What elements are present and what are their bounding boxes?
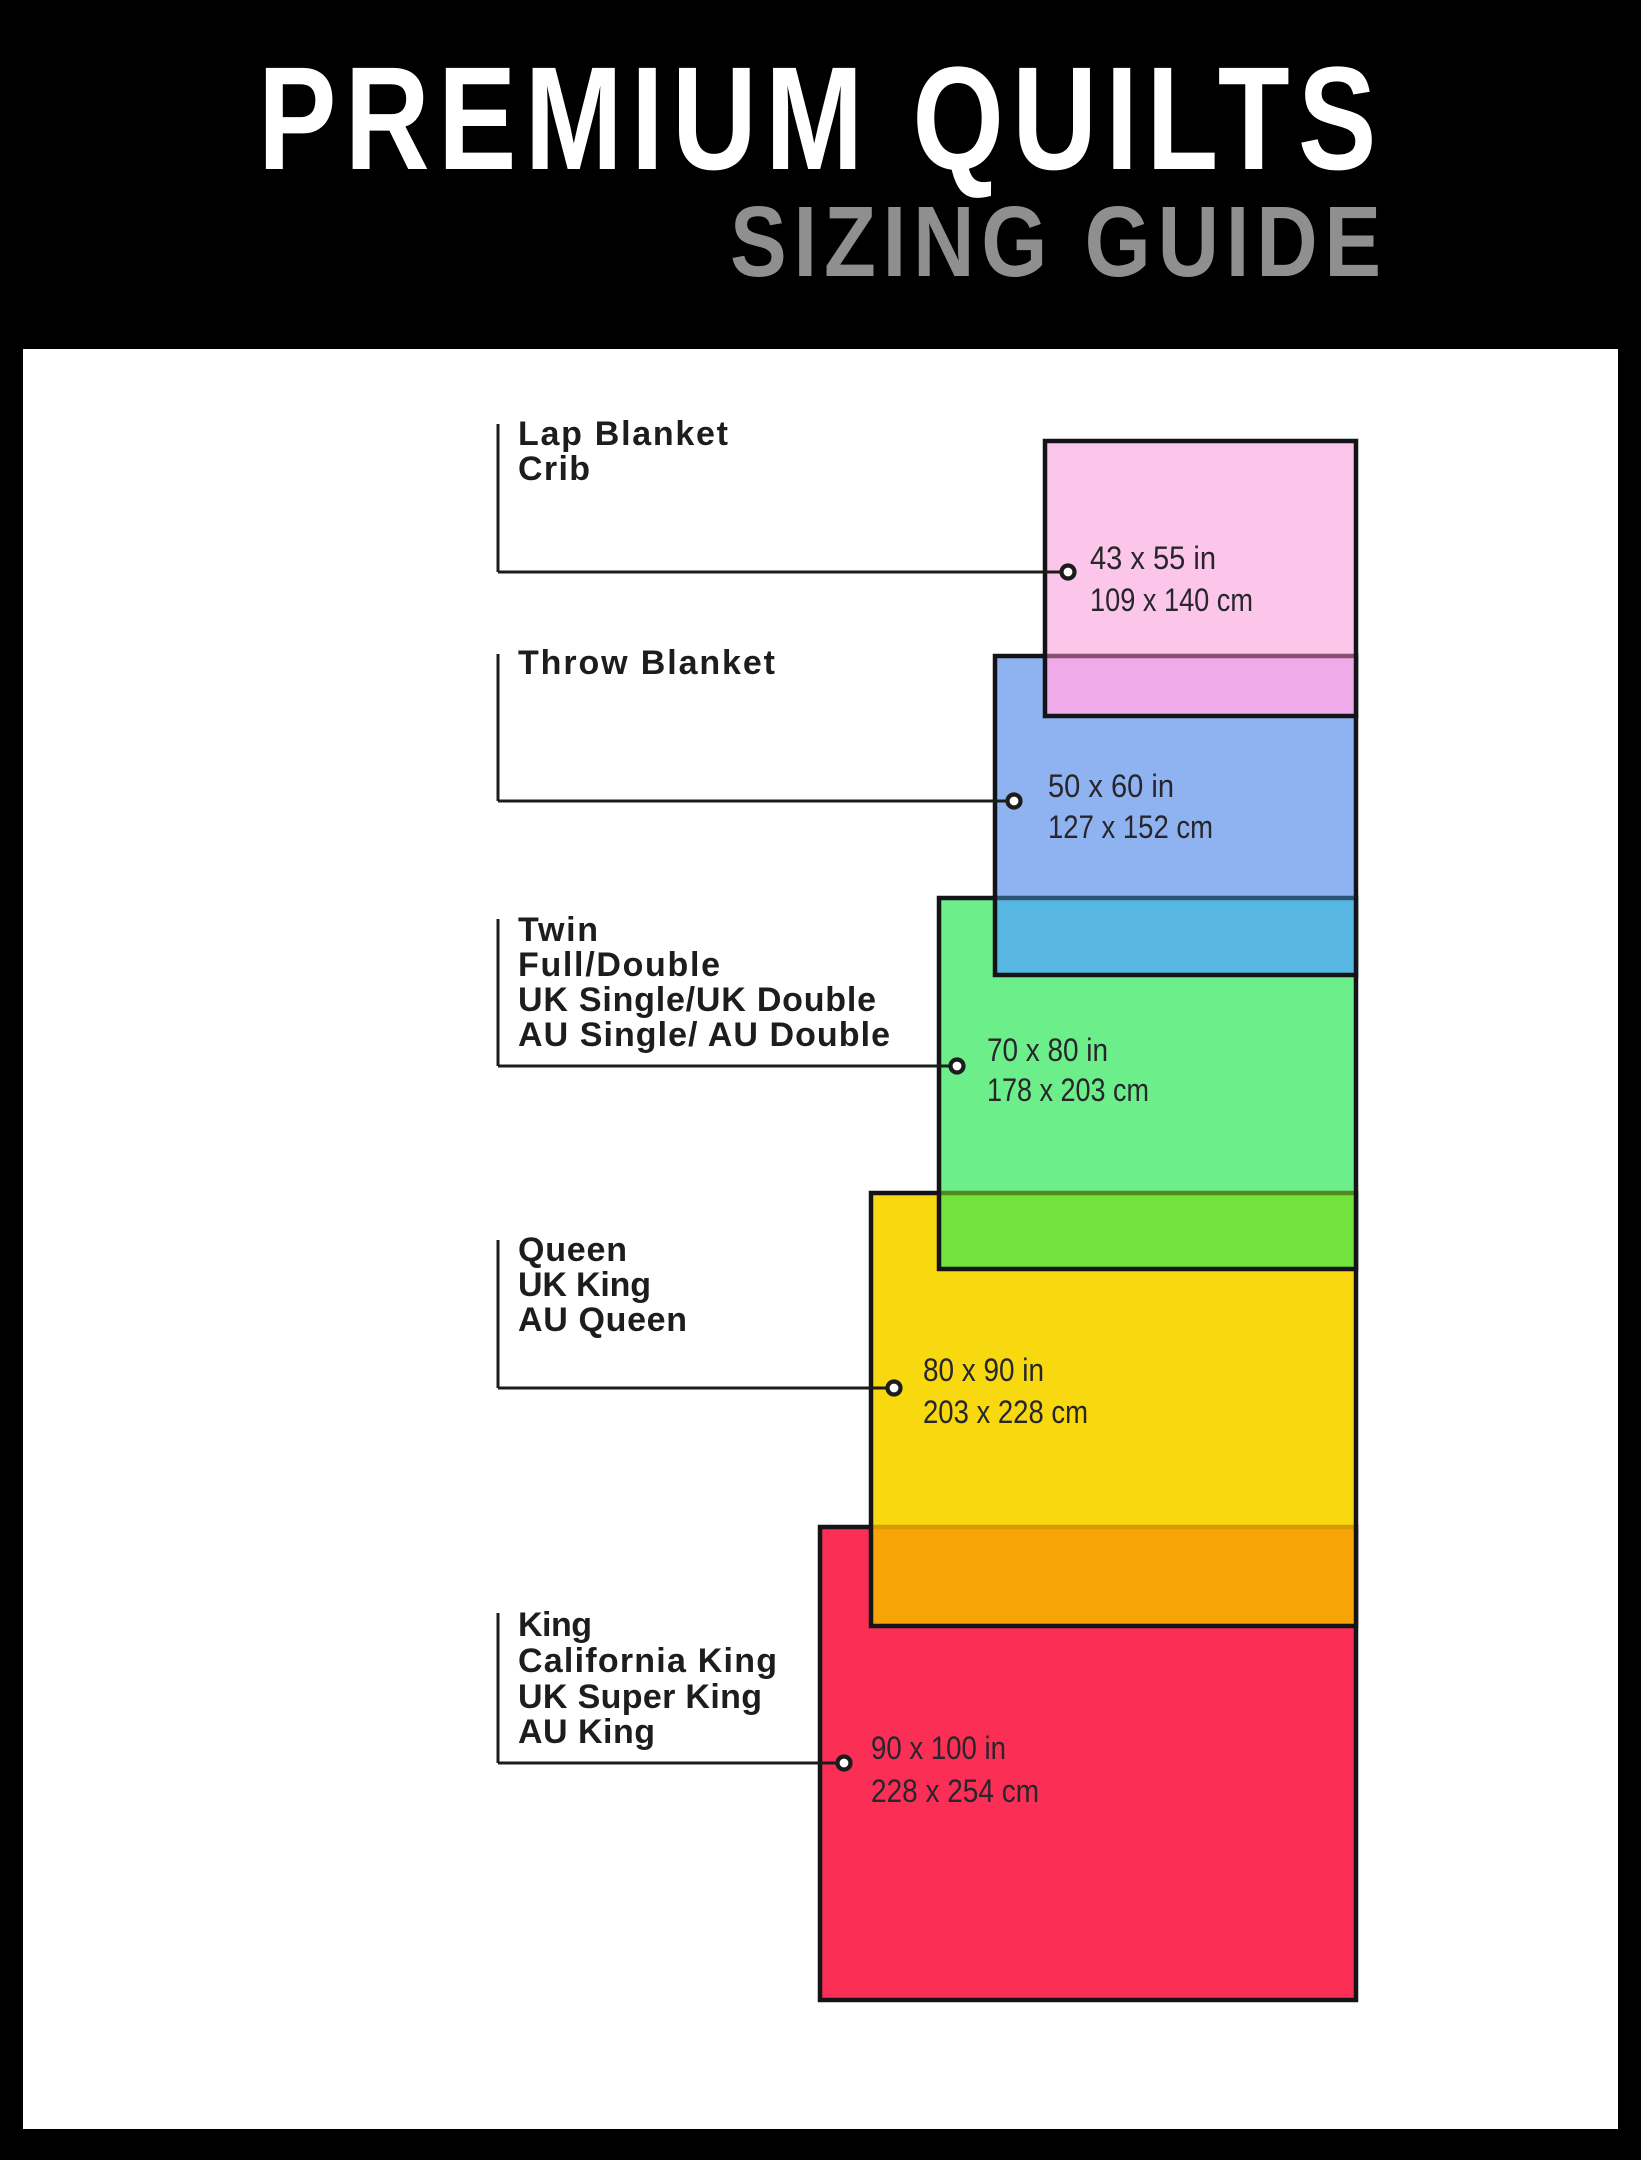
svg-text:Crib: Crib bbox=[518, 450, 590, 488]
svg-text:43 x 55 in: 43 x 55 in bbox=[1090, 540, 1216, 576]
svg-text:203 x 228 cm: 203 x 228 cm bbox=[923, 1394, 1088, 1430]
svg-text:Full/Double: Full/Double bbox=[518, 946, 720, 984]
svg-text:127 x 152 cm: 127 x 152 cm bbox=[1048, 809, 1213, 845]
svg-text:Lap Blanket: Lap Blanket bbox=[518, 415, 728, 453]
svg-text:UK Single/UK Double: UK Single/UK Double bbox=[518, 981, 876, 1019]
svg-text:70 x 80 in: 70 x 80 in bbox=[987, 1032, 1108, 1068]
svg-text:California King: California King bbox=[518, 1642, 777, 1680]
svg-text:PREMIUM QUILTS: PREMIUM QUILTS bbox=[258, 36, 1376, 201]
svg-text:Throw Blanket: Throw Blanket bbox=[518, 644, 775, 682]
svg-text:AU Queen: AU Queen bbox=[518, 1301, 687, 1339]
svg-text:90 x 100 in: 90 x 100 in bbox=[871, 1730, 1006, 1766]
svg-text:UK Super King: UK Super King bbox=[518, 1678, 762, 1716]
svg-text:80 x 90 in: 80 x 90 in bbox=[923, 1352, 1044, 1388]
svg-text:King: King bbox=[518, 1606, 592, 1644]
svg-text:UK King: UK King bbox=[518, 1266, 651, 1304]
svg-text:50 x 60 in: 50 x 60 in bbox=[1048, 768, 1174, 804]
svg-text:Twin: Twin bbox=[518, 911, 598, 949]
svg-text:AU Single/ AU Double: AU Single/ AU Double bbox=[518, 1016, 890, 1054]
svg-text:178 x 203 cm: 178 x 203 cm bbox=[987, 1072, 1149, 1108]
svg-text:228 x 254 cm: 228 x 254 cm bbox=[871, 1773, 1039, 1809]
svg-text:109 x 140 cm: 109 x 140 cm bbox=[1090, 582, 1253, 618]
svg-text:Queen: Queen bbox=[518, 1231, 627, 1269]
svg-text:AU King: AU King bbox=[518, 1713, 655, 1751]
svg-text:SIZING GUIDE: SIZING GUIDE bbox=[730, 185, 1381, 297]
